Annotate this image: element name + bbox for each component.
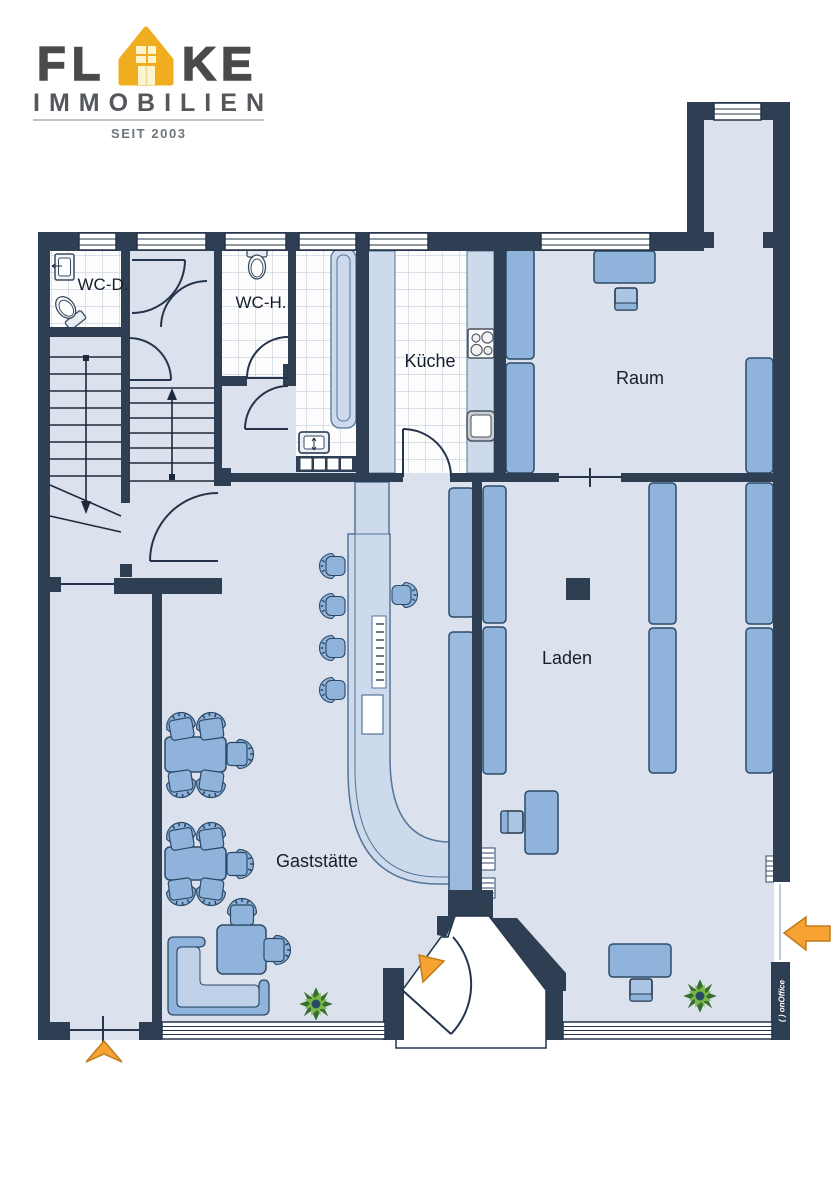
svg-text:KE: KE bbox=[182, 37, 257, 90]
svg-text:WC-D.: WC-D. bbox=[78, 275, 129, 294]
svg-text:SEIT 2003: SEIT 2003 bbox=[111, 126, 185, 141]
svg-text:Gaststätte: Gaststätte bbox=[276, 851, 358, 871]
svg-text:IMMOBILIEN: IMMOBILIEN bbox=[33, 89, 264, 117]
svg-text:( ) onOffice: ( ) onOffice bbox=[778, 979, 787, 1022]
svg-text:WC-H.: WC-H. bbox=[236, 293, 287, 312]
svg-text:FL: FL bbox=[37, 37, 106, 90]
svg-text:Raum: Raum bbox=[616, 368, 664, 388]
svg-text:Laden: Laden bbox=[542, 648, 592, 668]
svg-text:Küche: Küche bbox=[404, 351, 455, 371]
